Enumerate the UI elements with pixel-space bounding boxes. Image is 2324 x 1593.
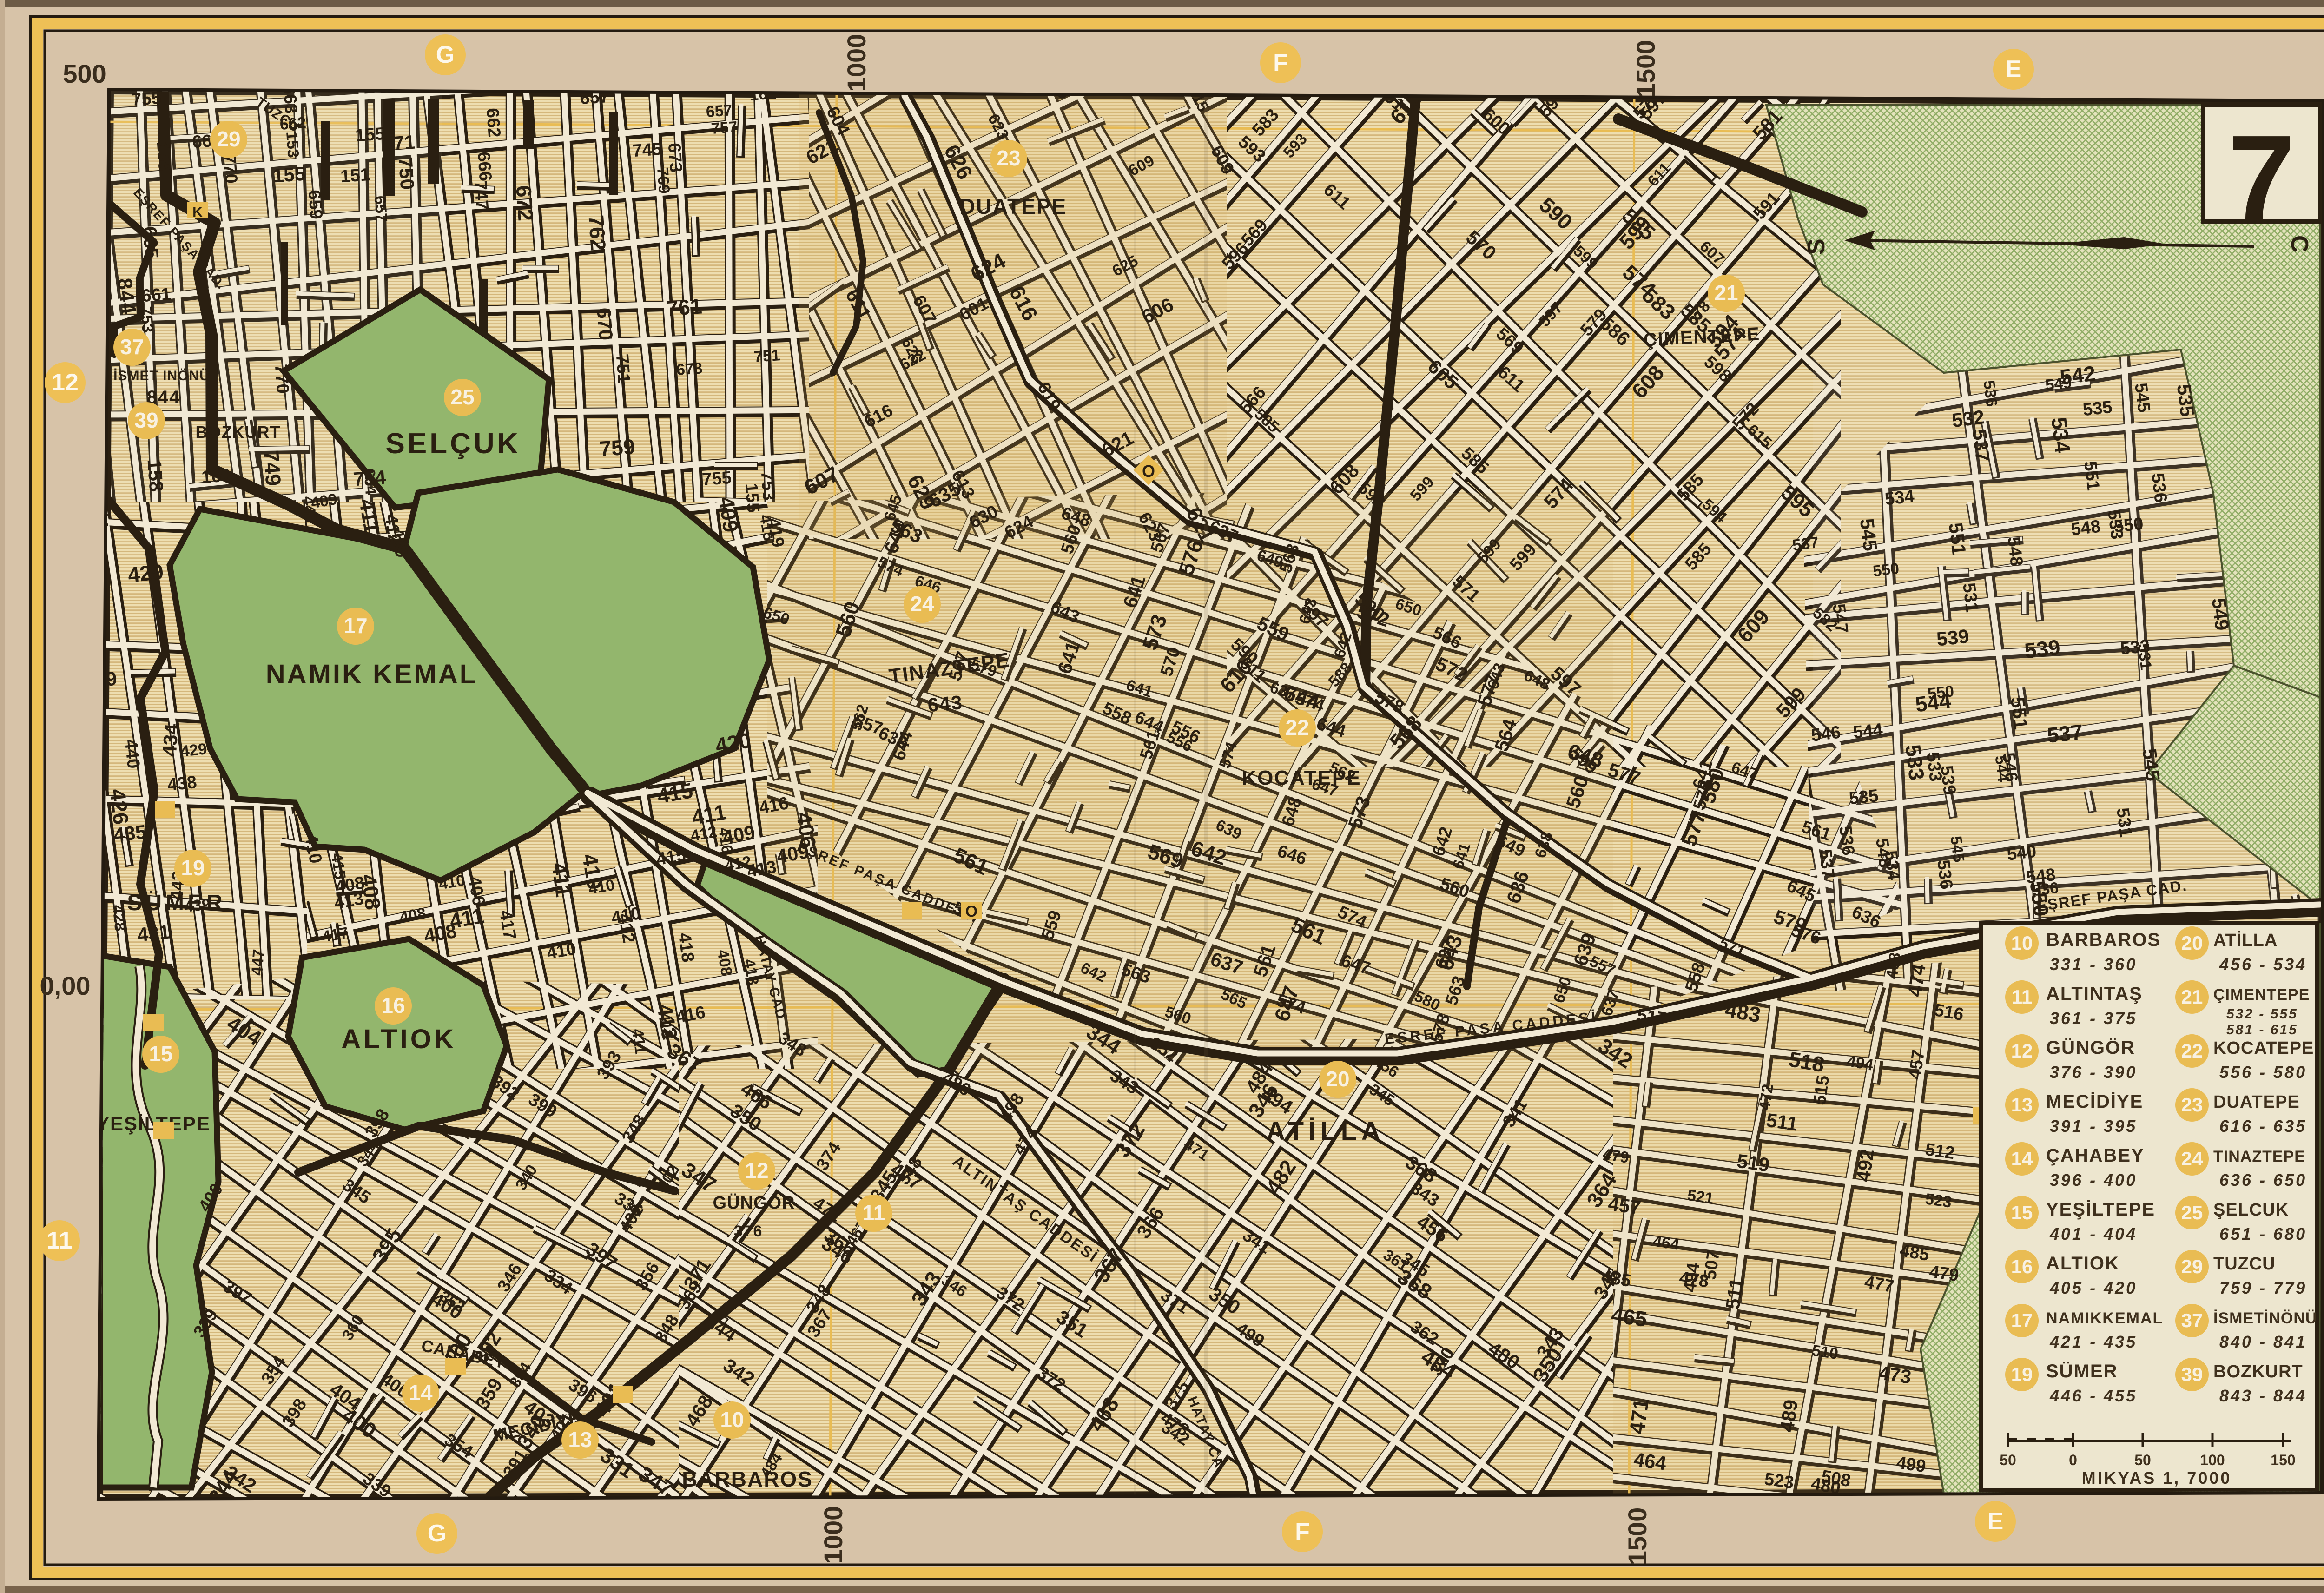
svg-text:F: F [1273, 49, 1288, 76]
svg-text:1500: 1500 [1623, 1507, 1652, 1566]
svg-text:1000: 1000 [819, 1506, 848, 1564]
svg-text:G: G [428, 1520, 446, 1547]
svg-text:0,00: 0,00 [40, 971, 91, 1000]
svg-text:500: 500 [63, 59, 106, 88]
svg-text:F: F [1295, 1518, 1310, 1545]
svg-text:11: 11 [47, 1227, 73, 1254]
svg-text:1000: 1000 [842, 34, 871, 92]
svg-text:G: G [436, 41, 455, 68]
svg-text:1500: 1500 [1631, 40, 1660, 98]
svg-text:E: E [1987, 1508, 2004, 1535]
svg-text:E: E [2006, 56, 2022, 83]
svg-text:12: 12 [52, 369, 79, 396]
